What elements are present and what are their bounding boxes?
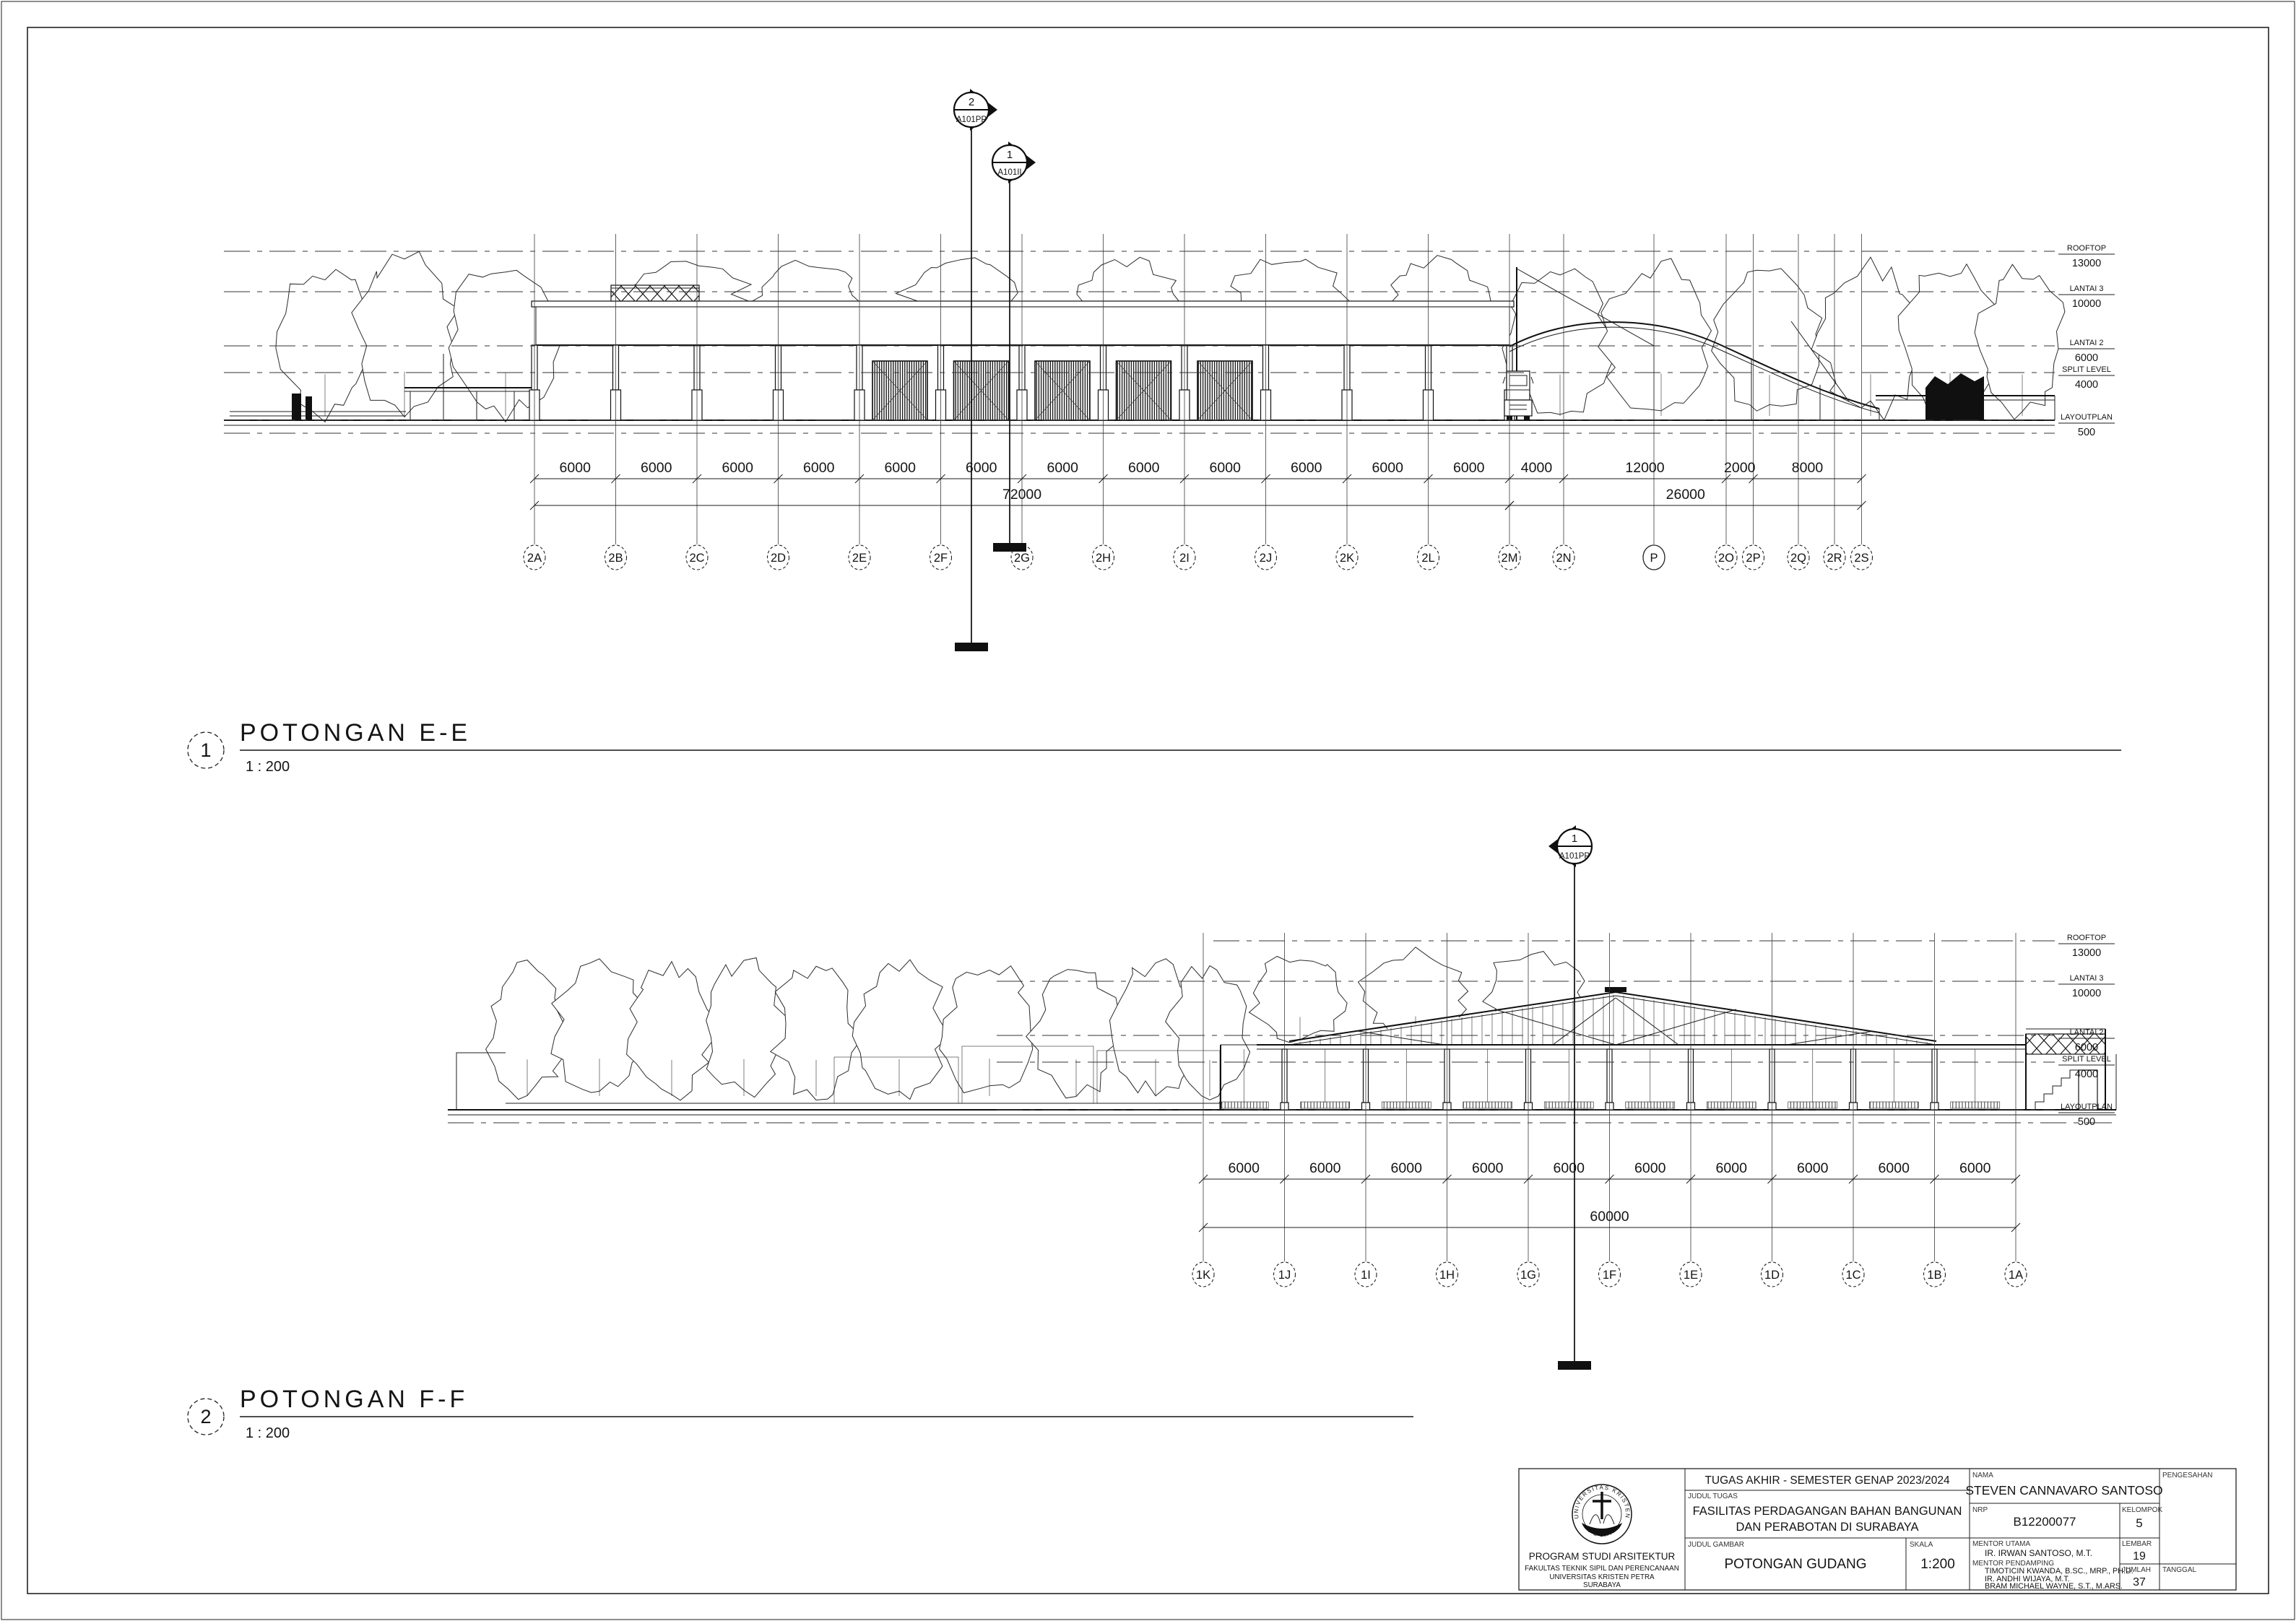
grid-label: 1C [1845, 1269, 1860, 1282]
grid-label: 2A [527, 552, 542, 565]
nama-label: NAMA [1972, 1472, 1993, 1479]
view-scale: 1 : 200 [246, 759, 290, 775]
title-number: 1 [200, 739, 211, 761]
marker-number: 2 [969, 96, 974, 108]
grid-label: 2G [1014, 552, 1030, 565]
level-value: 6000 [2075, 352, 2098, 364]
tree [627, 962, 719, 1100]
grid-label: 1D [1764, 1269, 1780, 1282]
total-sheets: 37 [2133, 1576, 2146, 1589]
grid-label: 2M [1502, 552, 1518, 565]
pengesahan-label: PENGESAHAN [2162, 1472, 2212, 1479]
section-cut-bar [993, 543, 1026, 552]
section-ee-artwork [224, 251, 2065, 433]
grid-label: 1I [1361, 1269, 1371, 1282]
tree [551, 959, 644, 1092]
dim-value: 6000 [722, 460, 754, 476]
dim-value: 6000 [1716, 1160, 1748, 1176]
grid-label: 1H [1439, 1269, 1455, 1282]
mentor-utama-name: IR. IRWAN SANTOSO, M.T. [1985, 1548, 2092, 1558]
section-cut-bar [955, 643, 988, 651]
dim-value: 6000 [803, 460, 835, 476]
mentor-utama-label: MENTOR UTAMA [1972, 1540, 2031, 1548]
jumlah-label: JUMLAH [2122, 1566, 2151, 1574]
drawing-title-ff: 2 POTONGAN F-F 1 : 200 [188, 1386, 1413, 1441]
level-value: 6000 [2075, 1042, 2098, 1053]
scale-value: 1:200 [1920, 1557, 1955, 1572]
drawing-sheet: ROOFTOP13000LANTAI 310000LANTAI 26000SPL… [0, 0, 2296, 1621]
level-value: 13000 [2072, 258, 2101, 269]
level-label: ROOFTOP [2067, 934, 2106, 942]
tree [352, 251, 459, 417]
lembar-label: LEMBAR [2122, 1540, 2152, 1548]
ground-louver [1301, 1102, 1350, 1108]
marker-sheet-ref: A101II [997, 168, 1021, 177]
section-cut-bar [1558, 1361, 1591, 1370]
ground-louver [1788, 1102, 1837, 1108]
level-label: SPLIT LEVEL [2062, 1055, 2111, 1064]
view-title: POTONGAN F-F [240, 1386, 468, 1413]
dim-value: 6000 [560, 460, 592, 476]
dim-value: 6000 [1372, 460, 1404, 476]
grid-label: 2I [1179, 552, 1190, 565]
group-number: 5 [2136, 1516, 2142, 1530]
dim-value: 6000 [1959, 1160, 1991, 1176]
student-id: B12200077 [2014, 1515, 2076, 1529]
dim-value: 2000 [1724, 460, 1756, 476]
sheet-title: POTONGAN GUDANG [1724, 1557, 1866, 1572]
grid-label: 2C [689, 552, 704, 565]
section-ff-annotations: ROOFTOP13000LANTAI 310000LANTAI 26000SPL… [997, 825, 2115, 1370]
judul-tugas-label: JUDUL TUGAS [1688, 1492, 1738, 1500]
grid-label: 2B [608, 552, 623, 565]
title-number: 2 [200, 1406, 211, 1427]
judul-gambar-label: JUDUL GAMBAR [1688, 1541, 1744, 1549]
level-label: LAYOUTPLAN [2061, 1103, 2113, 1111]
dim-value: 6000 [641, 460, 672, 476]
dim-total-value: 60000 [1590, 1209, 1629, 1225]
mentor-pendamping-3: BRAM MICHAEL WAYNE, S.T., M.ARS. [1985, 1582, 2123, 1591]
grid-label: 2D [771, 552, 786, 565]
tree [1026, 970, 1125, 1098]
level-value: 500 [2078, 1116, 2095, 1128]
left-pier-2 [306, 396, 312, 420]
roof-slab [532, 301, 1514, 307]
view-scale: 1 : 200 [246, 1425, 290, 1441]
dim-value: 12000 [1625, 460, 1664, 476]
marker-number: 1 [1572, 833, 1577, 845]
grid-label: 2N [1556, 552, 1571, 565]
ground-louver [1382, 1102, 1431, 1108]
dim-value: 6000 [1128, 460, 1160, 476]
institution-line-1: PROGRAM STUDI ARSITEKTUR [1529, 1551, 1676, 1562]
level-label: LANTAI 3 [2070, 974, 2104, 983]
dim-value: 6000 [1879, 1160, 1910, 1176]
dim-value: 6000 [1047, 460, 1079, 476]
dim-value: 6000 [1554, 1160, 1585, 1176]
dim-value: 6000 [1453, 460, 1485, 476]
truck-body [1504, 400, 1532, 416]
institution-line-2: FAKULTAS TEKNIK SIPIL DAN PERENCANAAN [1525, 1565, 1679, 1573]
level-label: SPLIT LEVEL [2062, 365, 2111, 374]
outer-border [1, 1, 2295, 1620]
grid-label: 2F [934, 552, 948, 565]
truck [1503, 371, 1533, 420]
grid-label: 2K [1340, 552, 1354, 565]
title-block: UNIVERSITAS KRISTEN PETRA PROGRAM STUDI … [1519, 1469, 2236, 1591]
grid-label: 1B [1927, 1269, 1941, 1282]
tree [1249, 957, 1348, 1043]
grid-label: 2J [1260, 552, 1272, 565]
grid-label: P [1650, 552, 1658, 565]
grid-label: 2O [1718, 552, 1734, 565]
level-value: 10000 [2072, 988, 2101, 999]
ground-louver [1951, 1102, 2000, 1108]
marker-sheet-ref: A101PP [1559, 852, 1590, 861]
level-label: LAYOUTPLAN [2061, 413, 2113, 422]
level-label: ROOFTOP [2067, 244, 2106, 253]
grid-label: 2L [1421, 552, 1434, 565]
grid-label: 2E [852, 552, 867, 565]
dim-value: 8000 [1792, 460, 1824, 476]
ridge-cap [1605, 987, 1626, 992]
project-title-line-2: DAN PERABOTAN DI SURABAYA [1736, 1521, 1918, 1534]
marker-number: 1 [1007, 149, 1013, 161]
grid-label: 1F [1603, 1269, 1616, 1282]
view-title: POTONGAN E-E [240, 719, 471, 747]
level-value: 10000 [2072, 298, 2101, 310]
dim-value: 6000 [1391, 1160, 1423, 1176]
ground-louver [1463, 1102, 1512, 1108]
tree [940, 966, 1033, 1093]
level-value: 4000 [2075, 379, 2098, 391]
level-label: LANTAI 2 [2070, 1028, 2104, 1037]
dim-value: 6000 [1210, 460, 1242, 476]
grid-label: 2H [1096, 552, 1111, 565]
dim-total-value: 26000 [1666, 487, 1705, 503]
dim-value: 4000 [1521, 460, 1553, 476]
grid-label: 2S [1854, 552, 1868, 565]
grid-label: 1J [1278, 1269, 1291, 1282]
dim-value: 6000 [885, 460, 917, 476]
tree [852, 960, 950, 1099]
tree [1712, 269, 1822, 411]
level-value: 13000 [2072, 947, 2101, 959]
truck-mirror [1503, 377, 1505, 383]
dim-value: 6000 [1472, 1160, 1504, 1176]
tanggal-label: TANGGAL [2162, 1566, 2196, 1574]
tree [706, 958, 792, 1098]
dim-value: 6000 [1291, 460, 1322, 476]
dim-value: 6000 [1634, 1160, 1666, 1176]
ground-louver [1626, 1102, 1675, 1108]
grid-label: 1E [1684, 1269, 1698, 1282]
ground-louver [1707, 1102, 1756, 1108]
ground-louver [1869, 1102, 1918, 1108]
grid-label: 1K [1196, 1269, 1210, 1282]
section-ff-artwork [448, 947, 2116, 1123]
roof-screen-bracing [611, 285, 699, 301]
marker-sheet-ref: A101PP [956, 116, 987, 124]
facade-band-bg [536, 307, 1509, 345]
level-label: LANTAI 2 [2070, 339, 2104, 347]
kelompok-label: KELOMPOK [2122, 1506, 2162, 1514]
sheet-number: 19 [2133, 1550, 2146, 1563]
level-value: 4000 [2075, 1069, 2098, 1080]
skala-label: SKALA [1910, 1541, 1933, 1549]
ground-louver [1219, 1102, 1268, 1108]
truck-wheel [1524, 416, 1530, 420]
left-pier [292, 394, 301, 420]
level-label: LANTAI 3 [2070, 284, 2104, 293]
institution-line-4: SURABAYA [1583, 1581, 1621, 1589]
dim-value: 6000 [1309, 1160, 1341, 1176]
grid-label: 2R [1827, 552, 1842, 565]
ground-louver [1544, 1102, 1593, 1108]
grid-label: 1G [1520, 1269, 1536, 1282]
drawing-title-ee: 1 POTONGAN E-E 1 : 200 [188, 719, 2121, 775]
institution-line-3: UNIVERSITAS KRISTEN PETRA [1549, 1573, 1655, 1581]
grid-label: 1A [2009, 1269, 2023, 1282]
grid-label: 2P [1746, 552, 1760, 565]
grid-label: 2Q [1790, 552, 1806, 565]
student-name: STEVEN CANNAVARO SANTOSO [1965, 1483, 2162, 1498]
level-value: 500 [2078, 427, 2095, 438]
dim-value: 6000 [1229, 1160, 1260, 1176]
roller-doors-ee [872, 361, 1252, 420]
tree [486, 960, 566, 1100]
project-title-line-1: FASILITAS PERDAGANGAN BAHAN BANGUNAN [1693, 1505, 1962, 1518]
dim-value: 6000 [1797, 1160, 1829, 1176]
nrp-label: NRP [1972, 1506, 1988, 1514]
dim-total-value: 72000 [1002, 487, 1041, 503]
assignment-title: TUGAS AKHIR - SEMESTER GENAP 2023/2024 [1704, 1474, 1950, 1487]
dim-value: 6000 [966, 460, 997, 476]
